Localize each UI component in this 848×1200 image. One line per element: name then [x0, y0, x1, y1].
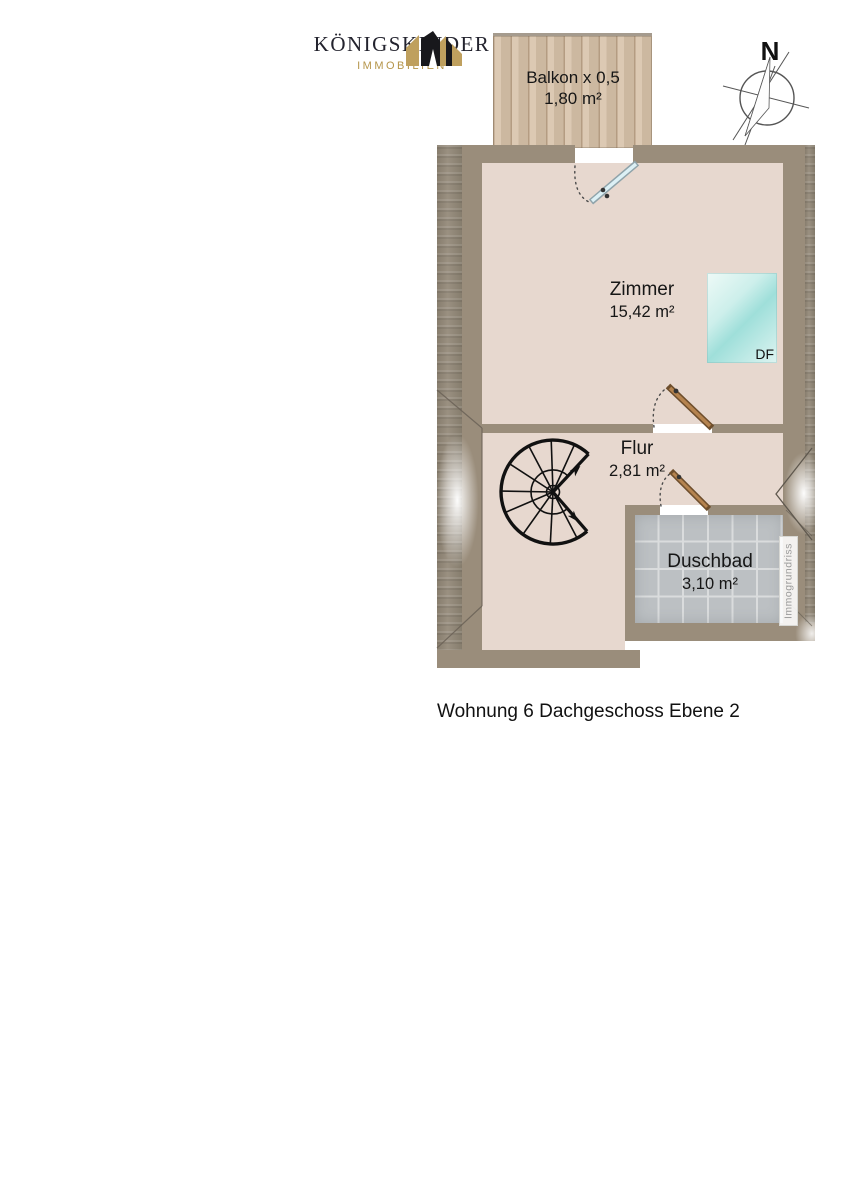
company-logo: KÖNIGSKINDER IMMOBILIEN — [302, 28, 502, 72]
room-label-zimmer: Zimmer 15,42 m² — [572, 279, 712, 323]
balcony-door — [575, 163, 637, 202]
watermark: Immogrundriss — [779, 536, 798, 626]
room-label-duschbad: Duschbad 3,10 m² — [637, 551, 783, 595]
dormer-lines-left — [437, 390, 482, 648]
room-label-flur: Flur 2,81 m² — [577, 438, 697, 482]
room-label-balkon: Balkon x 0,5 1,80 m² — [498, 68, 648, 110]
zimmer-door — [653, 386, 712, 428]
plan-caption: Wohnung 6 Dachgeschoss Ebene 2 — [437, 701, 740, 723]
dormer-lines-right — [776, 448, 812, 540]
crown-icon — [402, 28, 466, 66]
doors-and-roof-lines — [430, 140, 820, 680]
stair-steps — [501, 440, 577, 544]
compass-north-icon: N — [715, 22, 815, 147]
floor-plan-page: KÖNIGSKINDER IMMOBILIEN N Balkon x 0,5 1… — [0, 0, 848, 1200]
